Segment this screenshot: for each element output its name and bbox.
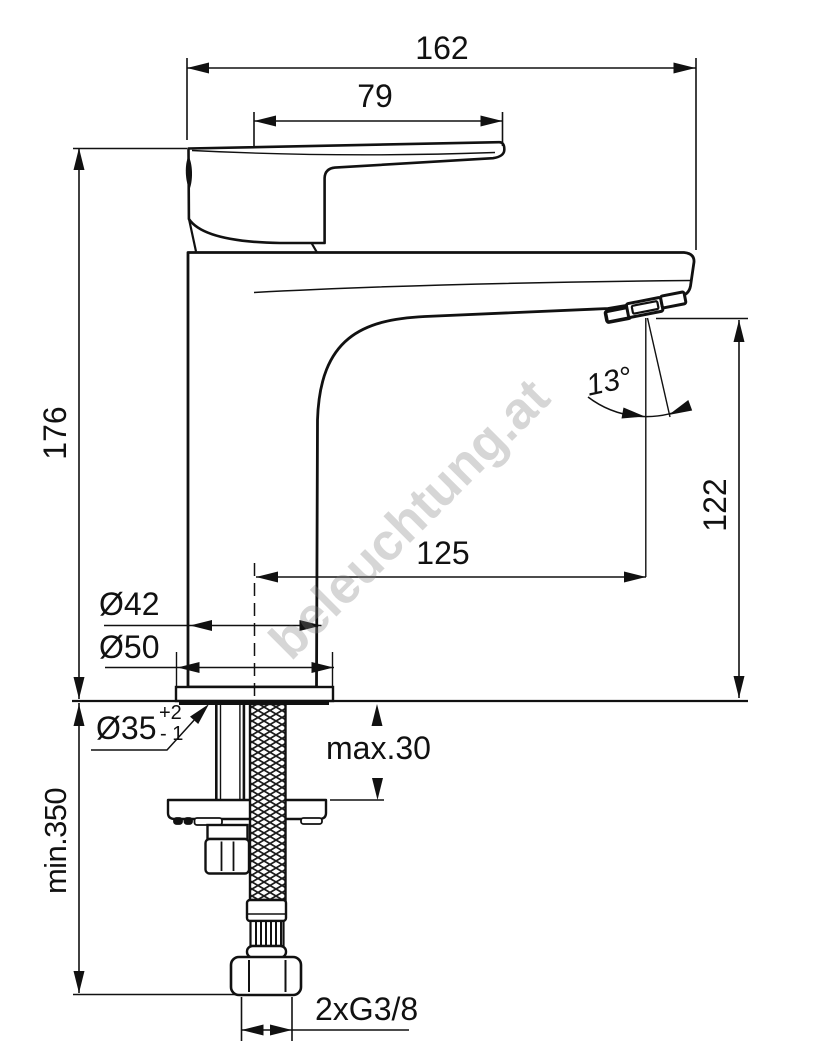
- svg-text:122: 122: [697, 478, 733, 531]
- svg-text:Ø35: Ø35: [96, 710, 156, 746]
- svg-text:- 1: - 1: [160, 723, 183, 745]
- svg-text:min.350: min.350: [38, 788, 73, 894]
- svg-text:176: 176: [37, 406, 73, 459]
- svg-text:Ø50: Ø50: [99, 629, 159, 665]
- svg-text:79: 79: [357, 78, 393, 114]
- svg-text:+2: +2: [159, 702, 182, 724]
- svg-text:Ø42: Ø42: [99, 586, 159, 622]
- svg-text:max.30: max.30: [326, 730, 431, 766]
- svg-text:2xG3/8: 2xG3/8: [315, 991, 418, 1027]
- svg-text:162: 162: [415, 30, 468, 66]
